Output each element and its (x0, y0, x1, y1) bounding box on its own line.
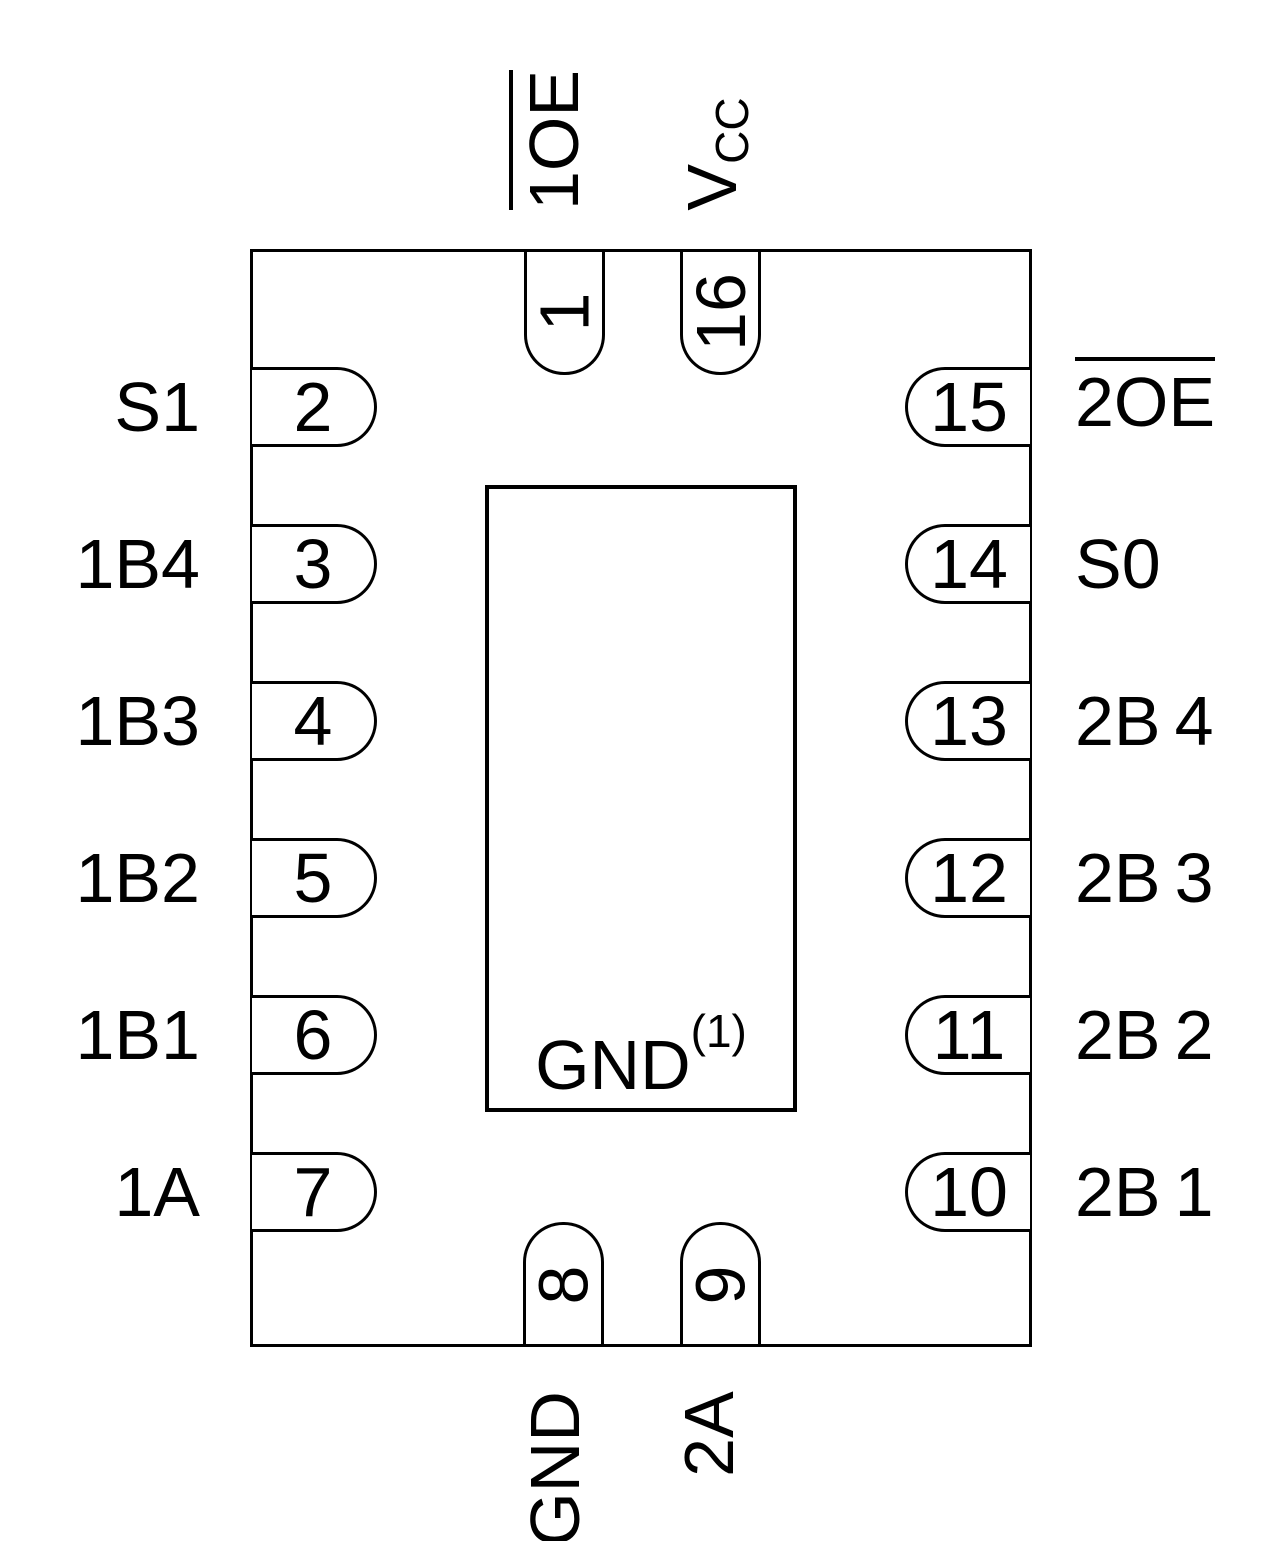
pin-8: 8 (523, 1222, 604, 1344)
pin-5-label: 1B2 (0, 838, 200, 918)
pin-10-label-text: 2B 1 (1075, 1157, 1214, 1227)
pin-4-label-text: 1B3 (75, 686, 200, 756)
pin-1-label-text: 1OE (509, 70, 589, 210)
pin-16: 16 (680, 252, 761, 375)
pin-11-label: 2B 2 (1075, 995, 1282, 1075)
pin-9-label-text: 2A (674, 1391, 744, 1477)
pin-15: 15 (905, 367, 1030, 447)
pin-15-label-text: 2OE (1075, 357, 1215, 437)
pin-1-label: 1OE (504, 45, 594, 235)
pin-15-number: 15 (930, 372, 1008, 442)
pin-16-label: VCC (671, 59, 761, 249)
pin-10-number: 10 (930, 1157, 1008, 1227)
vcc-base: V (673, 164, 751, 211)
pin-7: 7 (252, 1152, 377, 1232)
thermal-pad-label: GND(1) (535, 1030, 747, 1108)
pin-6: 6 (252, 995, 377, 1075)
vcc-subscript: CC (706, 97, 758, 163)
pin-8-label: GND (510, 1374, 600, 1541)
pin-6-number: 6 (294, 1000, 333, 1070)
pin-4: 4 (252, 681, 377, 761)
pin-12-label-text: 2B 3 (1075, 843, 1214, 913)
pin-7-number: 7 (294, 1157, 333, 1227)
pin-8-label-text: GND (520, 1391, 590, 1541)
pin-11-label-text: 2B 2 (1075, 1000, 1214, 1070)
pin-5-number: 5 (294, 843, 333, 913)
pin-2-label-text: S1 (114, 372, 200, 442)
pin-2-label: S1 (0, 367, 200, 447)
pin-6-label-text: 1B1 (75, 1000, 200, 1070)
pin-7-label-text: 1A (114, 1157, 200, 1227)
pin-13-label: 2B 4 (1075, 681, 1282, 761)
pin-13-number: 13 (930, 686, 1008, 756)
pin-1: 1 (524, 252, 605, 375)
pin-13-label-text: 2B 4 (1075, 686, 1214, 756)
pin-9: 9 (680, 1222, 761, 1344)
pin-15-label: 2OE (1075, 367, 1282, 447)
pin-11-number: 11 (933, 1000, 1006, 1070)
pin-13: 13 (905, 681, 1030, 761)
pin-3-label: 1B4 (0, 524, 200, 604)
pin-7-label: 1A (0, 1152, 200, 1232)
pinout-diagram: GND(1) 1 16 8 9 2 3 4 5 6 7 15 14 13 12 (0, 0, 1282, 1541)
pin-5-label-text: 1B2 (75, 843, 200, 913)
pin-3: 3 (252, 524, 377, 604)
pin-11: 11 (905, 995, 1030, 1075)
thermal-pad: GND(1) (485, 485, 797, 1112)
pin-14-label-text: S0 (1075, 529, 1161, 599)
pin-4-label: 1B3 (0, 681, 200, 761)
pin-16-label-text: VCC (677, 97, 755, 210)
pin-14: 14 (905, 524, 1030, 604)
pin-3-number: 3 (294, 529, 333, 599)
pin-12-number: 12 (930, 843, 1008, 913)
pin-12-label: 2B 3 (1075, 838, 1282, 918)
pin-6-label: 1B1 (0, 995, 200, 1075)
pin-16-number: 16 (686, 273, 756, 351)
pin-14-label: S0 (1075, 524, 1282, 604)
pin-9-number: 9 (686, 1265, 756, 1304)
pin-1-number: 1 (530, 293, 600, 332)
pin-12: 12 (905, 838, 1030, 918)
pin-5: 5 (252, 838, 377, 918)
thermal-pad-label-text: GND (535, 1026, 691, 1104)
pin-2: 2 (252, 367, 377, 447)
pin-8-number: 8 (529, 1265, 599, 1304)
pin-9-label: 2A (664, 1339, 754, 1529)
pin-2-number: 2 (294, 372, 333, 442)
pin-3-label-text: 1B4 (75, 529, 200, 599)
thermal-pad-footnote: (1) (691, 1005, 747, 1057)
pin-4-number: 4 (294, 686, 333, 756)
pin-14-number: 14 (930, 529, 1008, 599)
pin-10-label: 2B 1 (1075, 1152, 1282, 1232)
pin-10: 10 (905, 1152, 1030, 1232)
